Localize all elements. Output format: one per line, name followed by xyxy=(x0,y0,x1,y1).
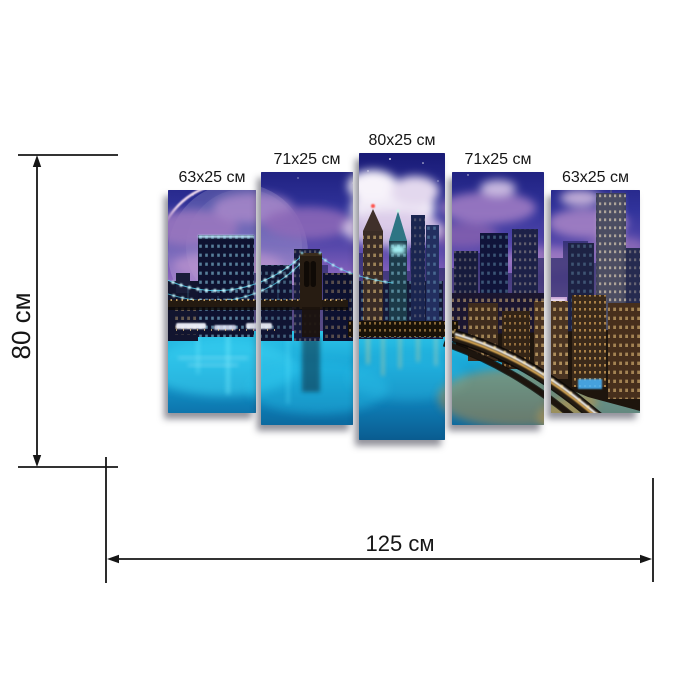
horizontal-dimension-line xyxy=(106,457,653,583)
artwork-panels-container: 63x25 см71x25 см80x25 см71x25 см63x25 см xyxy=(168,153,640,440)
arrow-left-icon xyxy=(107,555,119,563)
cityscape-scene xyxy=(261,172,353,425)
product-dimension-diagram: 80 см 125 см 63x25 см71x25 см80x25 см71x… xyxy=(0,0,700,700)
panel-size-label-3: 80x25 см xyxy=(359,131,445,151)
width-dimension-label: 125 см xyxy=(366,531,435,556)
arrow-right-icon xyxy=(640,555,652,563)
cityscape-scene xyxy=(551,190,640,413)
canvas-panel-1 xyxy=(168,190,256,413)
arrow-up-icon xyxy=(33,155,41,167)
panel-size-label-2: 71x25 см xyxy=(261,150,353,170)
panel-size-label-4: 71x25 см xyxy=(452,150,544,170)
canvas-panel-5 xyxy=(551,190,640,413)
height-dimension-label: 80 см xyxy=(6,292,36,359)
cityscape-scene xyxy=(168,190,256,413)
canvas-panel-2 xyxy=(261,172,353,425)
panel-size-label-5: 63x25 см xyxy=(551,168,640,188)
cityscape-scene xyxy=(452,172,544,425)
canvas-panel-4 xyxy=(452,172,544,425)
canvas-panel-3 xyxy=(359,153,445,440)
panel-size-label-1: 63x25 см xyxy=(168,168,256,188)
arrow-down-icon xyxy=(33,455,41,467)
cityscape-scene xyxy=(359,153,445,440)
